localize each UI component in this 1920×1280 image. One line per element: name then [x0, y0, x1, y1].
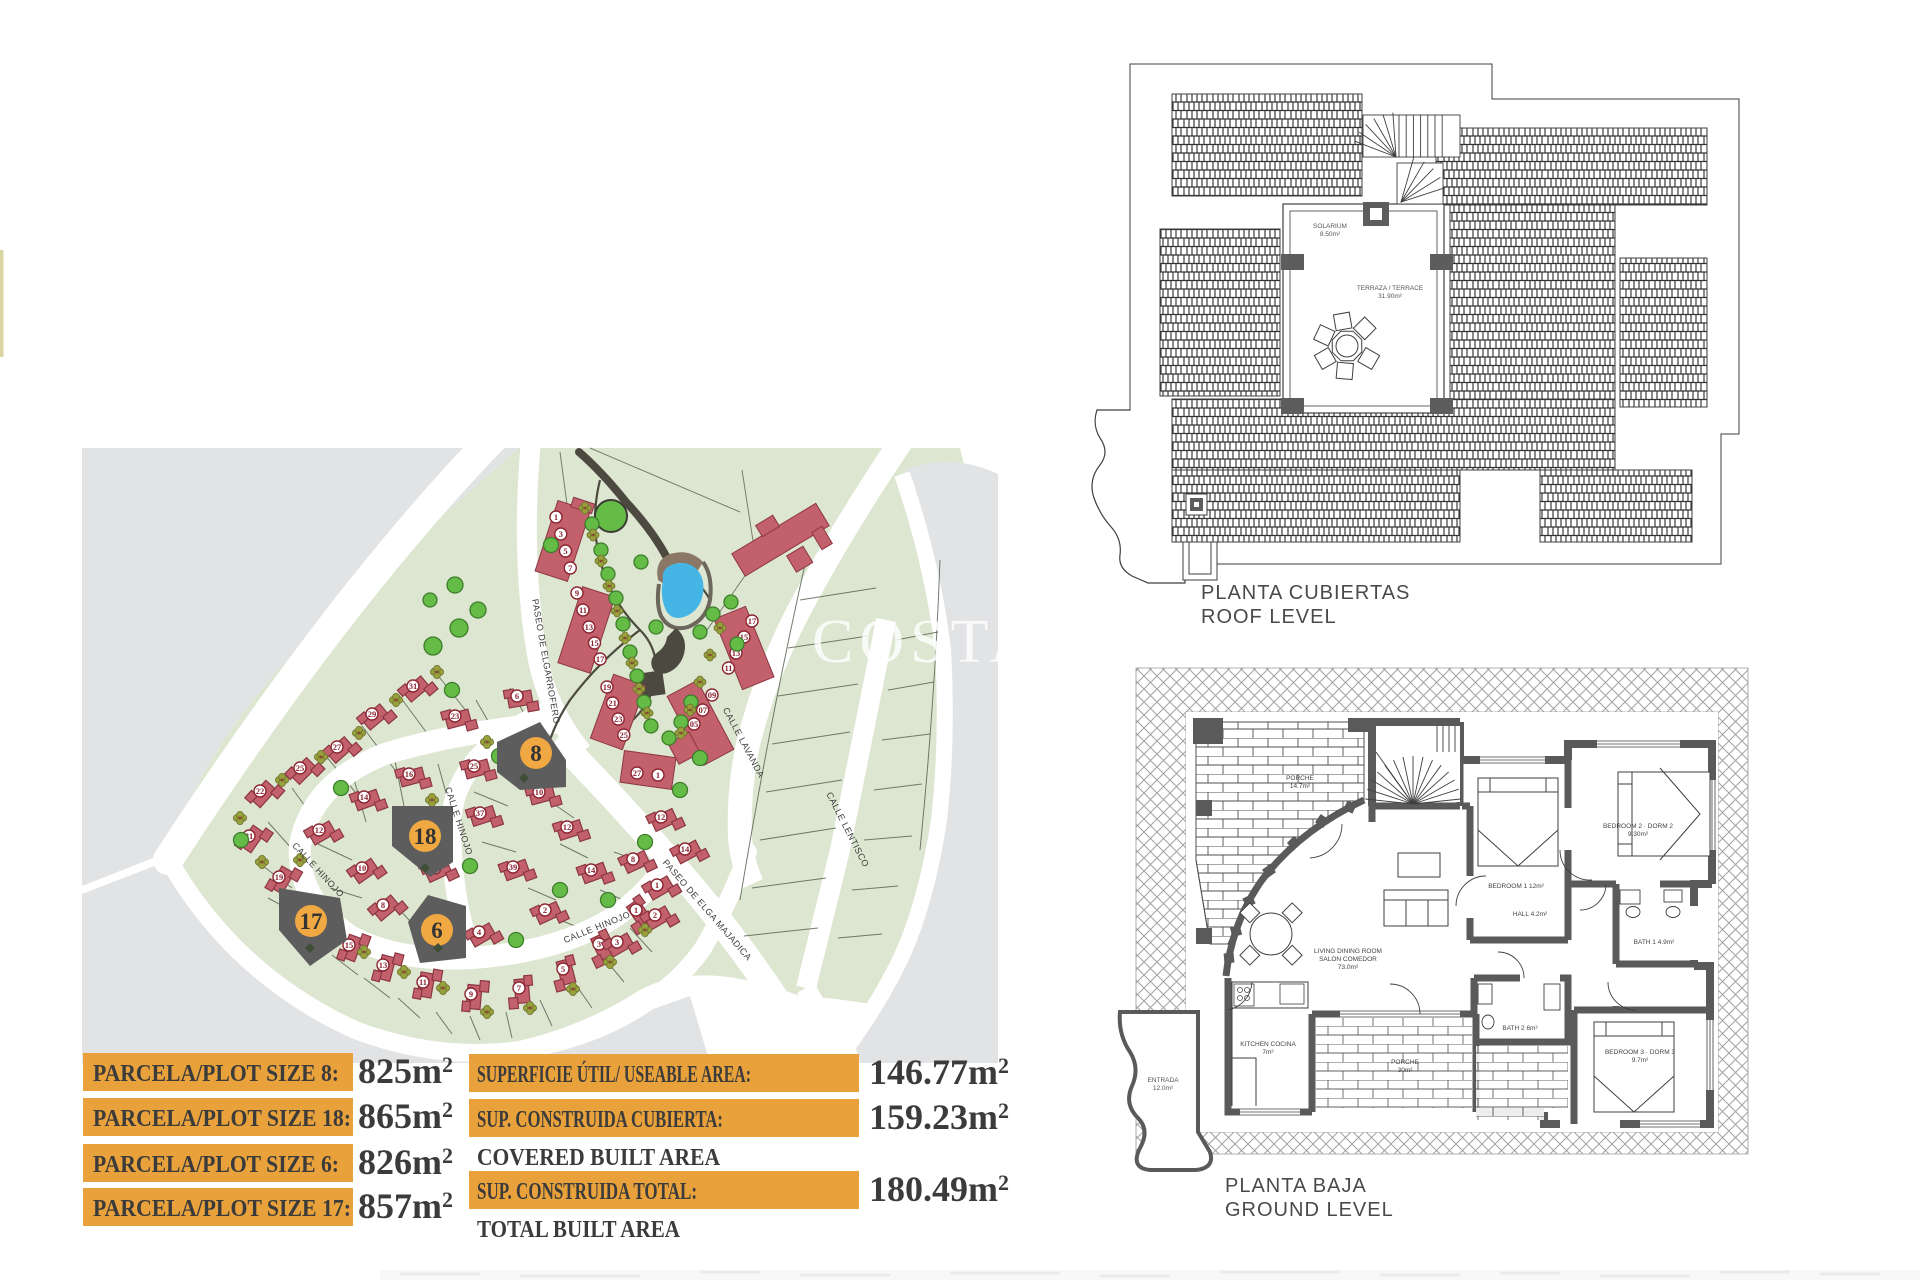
- svg-text:15: 15: [345, 940, 354, 950]
- svg-text:11: 11: [419, 977, 427, 987]
- svg-text:12: 12: [315, 825, 324, 835]
- svg-text:25: 25: [620, 730, 629, 740]
- svg-text:PARCELA/PLOT SIZE 18:: PARCELA/PLOT SIZE 18:: [93, 1106, 351, 1132]
- svg-text:BEDROOM 1 12m²: BEDROOM 1 12m²: [1488, 883, 1544, 890]
- svg-text:27: 27: [633, 768, 642, 778]
- svg-text:25: 25: [470, 761, 479, 771]
- svg-text:SUP. CONSTRUIDA CUBIERTA:: SUP. CONSTRUIDA CUBIERTA:: [477, 1107, 723, 1133]
- svg-text:2: 2: [543, 905, 547, 915]
- svg-text:5: 5: [563, 546, 567, 556]
- svg-text:7m²: 7m²: [1262, 1049, 1274, 1056]
- svg-text:1: 1: [656, 770, 660, 780]
- svg-text:12: 12: [563, 822, 572, 832]
- svg-text:18: 18: [414, 824, 437, 849]
- svg-text:BEDROOM 3 · DORM 3: BEDROOM 3 · DORM 3: [1605, 1049, 1675, 1056]
- svg-text:11: 11: [724, 663, 732, 673]
- svg-text:8: 8: [631, 854, 635, 864]
- svg-text:39: 39: [509, 862, 518, 872]
- svg-text:PLANTA CUBIERTAS: PLANTA CUBIERTAS: [1201, 582, 1410, 604]
- svg-text:31.90m²: 31.90m²: [1378, 293, 1403, 300]
- svg-text:159.23m2: 159.23m2: [869, 1097, 1009, 1137]
- svg-text:9: 9: [575, 588, 579, 598]
- svg-text:25: 25: [296, 763, 305, 773]
- svg-text:ROOF LEVEL: ROOF LEVEL: [1201, 606, 1337, 628]
- svg-text:PARCELA/PLOT SIZE 17:: PARCELA/PLOT SIZE 17:: [93, 1196, 351, 1222]
- svg-text:3: 3: [615, 937, 619, 947]
- svg-text:GROUND LEVEL: GROUND LEVEL: [1225, 1199, 1394, 1221]
- svg-text:6: 6: [431, 918, 443, 943]
- svg-text:2: 2: [653, 910, 657, 920]
- svg-text:17: 17: [748, 616, 757, 626]
- svg-text:8.50m²: 8.50m²: [1320, 231, 1341, 238]
- svg-text:13: 13: [585, 622, 594, 632]
- svg-text:BEDROOM 2 · DORM 2: BEDROOM 2 · DORM 2: [1603, 823, 1673, 830]
- svg-text:05: 05: [690, 719, 699, 729]
- svg-text:3: 3: [559, 529, 563, 539]
- svg-text:21: 21: [608, 698, 617, 708]
- svg-text:TOTAL BUILT AREA: TOTAL BUILT AREA: [477, 1217, 681, 1243]
- svg-text:PARCELA/PLOT SIZE 8:: PARCELA/PLOT SIZE 8:: [93, 1061, 339, 1087]
- svg-text:146.77m2: 146.77m2: [869, 1052, 1009, 1092]
- svg-text:9.30m²: 9.30m²: [1628, 831, 1649, 838]
- svg-text:SUPERFICIE ÚTIL/ USEABLE AREA:: SUPERFICIE ÚTIL/ USEABLE AREA:: [477, 1062, 751, 1088]
- svg-text:PORCHE: PORCHE: [1391, 1059, 1419, 1066]
- svg-text:COVERED BUILT AREA: COVERED BUILT AREA: [477, 1145, 721, 1171]
- svg-text:27: 27: [333, 742, 342, 752]
- svg-text:SOLARIUM: SOLARIUM: [1313, 223, 1347, 230]
- svg-text:KITCHEN COCINA: KITCHEN COCINA: [1240, 1041, 1296, 1048]
- svg-text:13: 13: [379, 960, 388, 970]
- svg-text:12.0m²: 12.0m²: [1153, 1085, 1174, 1092]
- svg-text:LIVING DINING ROOM: LIVING DINING ROOM: [1314, 948, 1382, 955]
- svg-text:PLANTA BAJA: PLANTA BAJA: [1225, 1175, 1367, 1197]
- svg-text:ENTRADA: ENTRADA: [1147, 1077, 1179, 1084]
- svg-text:15: 15: [590, 638, 599, 648]
- svg-text:30m²: 30m²: [1398, 1067, 1414, 1074]
- svg-text:22: 22: [256, 786, 265, 796]
- svg-text:14: 14: [360, 792, 369, 802]
- svg-text:825m2: 825m2: [358, 1051, 453, 1091]
- svg-text:07: 07: [698, 705, 707, 715]
- svg-text:6: 6: [515, 691, 519, 701]
- svg-text:865m2: 865m2: [358, 1096, 453, 1136]
- svg-text:PARCELA/PLOT SIZE 6:: PARCELA/PLOT SIZE 6:: [93, 1152, 339, 1178]
- svg-text:TERRAZA / TERRACE: TERRAZA / TERRACE: [1357, 285, 1424, 292]
- svg-text:BATH 1 4.9m²: BATH 1 4.9m²: [1634, 939, 1676, 946]
- svg-text:09: 09: [708, 690, 717, 700]
- svg-text:HALL 4.2m²: HALL 4.2m²: [1513, 911, 1548, 918]
- svg-text:14: 14: [587, 865, 596, 875]
- svg-text:PORCHE: PORCHE: [1286, 775, 1314, 782]
- svg-text:11: 11: [579, 605, 587, 615]
- svg-text:180.49m2: 180.49m2: [869, 1169, 1009, 1209]
- svg-text:16: 16: [405, 769, 414, 779]
- svg-text:SUP. CONSTRUIDA TOTAL:: SUP. CONSTRUIDA TOTAL:: [477, 1179, 697, 1205]
- svg-text:17: 17: [300, 909, 323, 934]
- svg-text:857m2: 857m2: [358, 1186, 453, 1226]
- svg-text:COSTA: COSTA: [812, 608, 1040, 676]
- svg-text:1: 1: [634, 905, 638, 915]
- svg-text:14: 14: [681, 844, 690, 854]
- svg-text:19: 19: [603, 682, 612, 692]
- svg-text:8: 8: [381, 900, 385, 910]
- svg-text:23: 23: [614, 714, 623, 724]
- svg-text:1: 1: [655, 880, 659, 890]
- svg-text:826m2: 826m2: [358, 1142, 453, 1182]
- svg-text:3: 3: [597, 939, 601, 949]
- svg-text:1: 1: [554, 512, 558, 522]
- svg-text:5: 5: [561, 964, 565, 974]
- svg-text:29: 29: [368, 709, 377, 719]
- svg-text:BATH 2 6m²: BATH 2 6m²: [1502, 1025, 1538, 1032]
- svg-text:7: 7: [568, 563, 573, 573]
- svg-text:9: 9: [469, 989, 473, 999]
- svg-text:73.0m²: 73.0m²: [1338, 964, 1359, 971]
- svg-text:17: 17: [596, 654, 605, 664]
- svg-text:SALON COMEDOR: SALON COMEDOR: [1319, 956, 1377, 963]
- svg-text:37: 37: [476, 808, 485, 818]
- svg-text:8: 8: [530, 741, 542, 766]
- svg-text:12: 12: [657, 812, 666, 822]
- svg-text:19: 19: [275, 872, 284, 882]
- svg-text:9.7m²: 9.7m²: [1632, 1057, 1649, 1064]
- svg-text:10: 10: [358, 863, 367, 873]
- svg-text:14.7m²: 14.7m²: [1290, 783, 1311, 790]
- svg-text:31: 31: [409, 681, 418, 691]
- svg-text:23: 23: [451, 711, 460, 721]
